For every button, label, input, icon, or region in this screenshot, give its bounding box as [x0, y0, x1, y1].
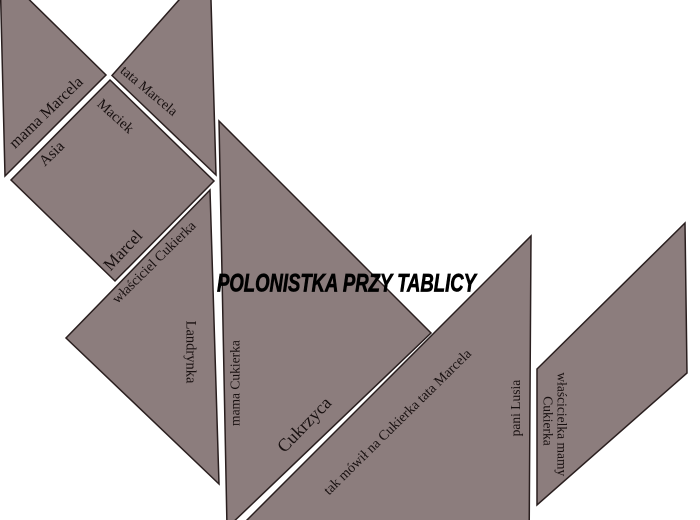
svg-text:Cukierka: Cukierka — [541, 396, 556, 446]
svg-text:właścicielka mamy: właścicielka mamy — [555, 372, 570, 476]
svg-text:POLONISTKA PRZY TABLICY: POLONISTKA PRZY TABLICY — [217, 270, 478, 298]
svg-text:Landrynka: Landrynka — [183, 321, 199, 384]
svg-text:mama Cukierka: mama Cukierka — [228, 340, 243, 426]
svg-text:pani Lusia: pani Lusia — [508, 380, 523, 437]
